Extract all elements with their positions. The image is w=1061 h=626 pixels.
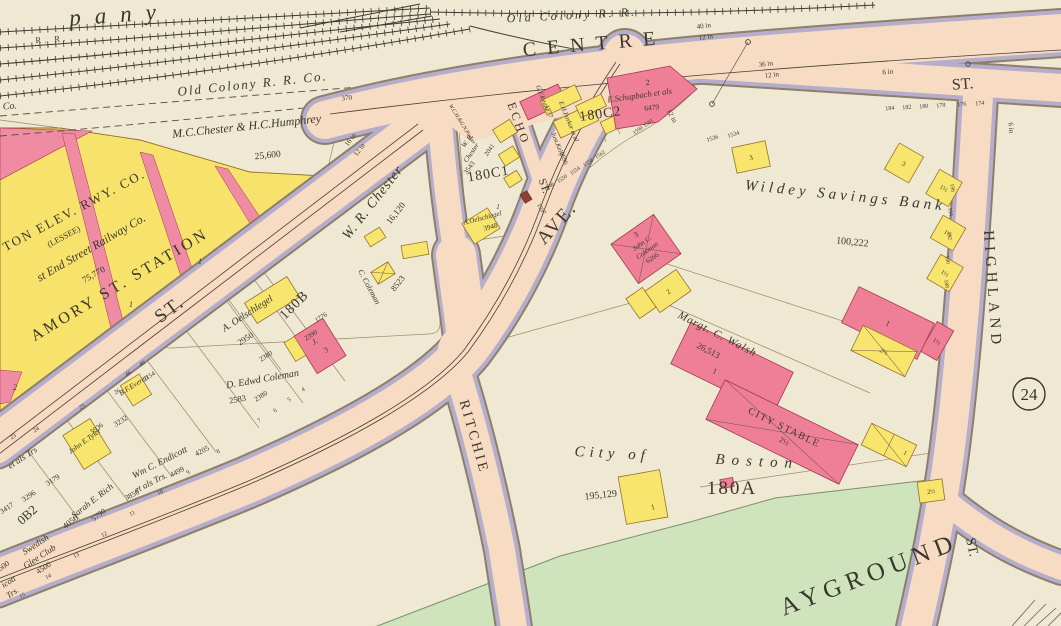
label-370: 370 (341, 93, 353, 102)
atlas-map: J. 3 3 3 1½ 1½ 1½ 1½ 3 (0, 0, 1061, 626)
adjacent-plate-number: 24 (1021, 385, 1039, 404)
house-number: 188 (942, 279, 949, 288)
house-number: 180 (919, 104, 929, 111)
house-number: 178 (936, 103, 946, 110)
building-number: 2½ (927, 488, 936, 496)
label-co-partial: Co. (2, 101, 17, 113)
house-number: 184 (885, 106, 895, 113)
house-number: 196 (948, 183, 955, 192)
house-number: 190 (943, 255, 950, 264)
lot-number: 1 (496, 203, 500, 211)
building: 2½ (917, 479, 945, 503)
lot-number: 1 (129, 300, 133, 309)
pipe-label: 6 in (882, 67, 894, 76)
house-number: 194 (946, 207, 953, 216)
map-canvas: J. 3 3 3 1½ 1½ 1½ 1½ 3 (0, 0, 1061, 626)
house-number: 174 (975, 101, 985, 108)
building: 1 (618, 470, 668, 525)
house-number: 182 (902, 105, 912, 112)
lot-number: 1 (198, 257, 202, 266)
block-label-180a: 180A (707, 478, 757, 499)
house-number: 176 (957, 102, 967, 109)
street-label-st-top-right: ST. (951, 75, 974, 93)
pipe-label: 6 in (1007, 122, 1016, 134)
lot-number: 2 (13, 383, 17, 392)
house-number: 192 (945, 231, 952, 240)
